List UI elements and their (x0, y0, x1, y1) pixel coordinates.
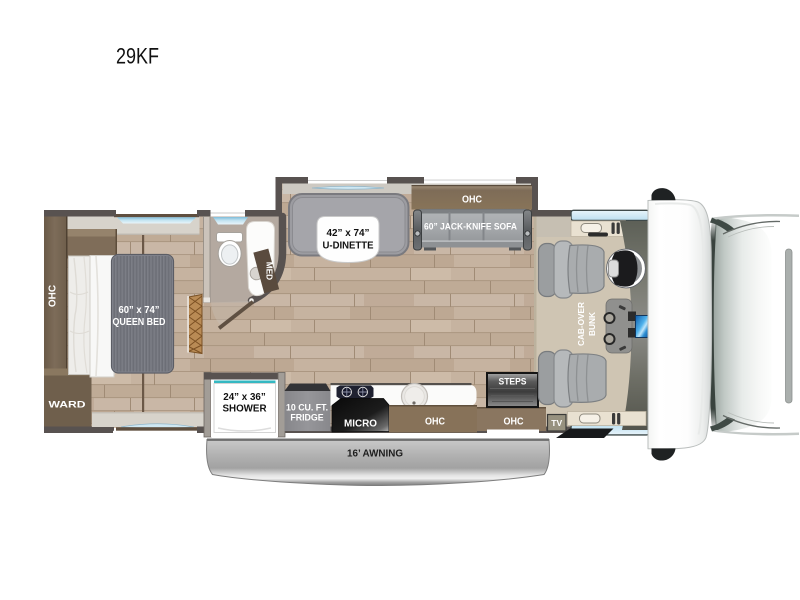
svg-text:MED: MED (265, 262, 274, 280)
svg-text:OHC: OHC (504, 417, 524, 428)
svg-text:TV: TV (551, 418, 562, 428)
svg-text:FRIDGE: FRIDGE (290, 413, 323, 423)
svg-text:BUNK: BUNK (587, 312, 597, 336)
svg-text:24” x 36”: 24” x 36” (223, 392, 266, 403)
svg-text:42” x 74”: 42” x 74” (327, 228, 370, 239)
svg-text:U-DINETTE: U-DINETTE (323, 241, 374, 252)
svg-text:16’ AWNING: 16’ AWNING (347, 448, 403, 460)
svg-text:10 CU. FT.: 10 CU. FT. (286, 403, 328, 413)
svg-text:OHC: OHC (462, 195, 482, 206)
svg-text:60” x 74”: 60” x 74” (119, 305, 160, 316)
svg-text:STEPS: STEPS (499, 377, 527, 387)
svg-text:QUEEN BED: QUEEN BED (113, 317, 166, 328)
svg-text:29KF: 29KF (116, 44, 159, 69)
svg-text:OHC: OHC (425, 417, 445, 428)
svg-text:MICRO: MICRO (344, 419, 377, 430)
svg-text:SHOWER: SHOWER (222, 404, 266, 415)
svg-text:60” JACK-KNIFE SOFA: 60” JACK-KNIFE SOFA (424, 222, 517, 232)
svg-text:WARD: WARD (49, 400, 86, 411)
svg-text:OHC: OHC (48, 285, 59, 307)
svg-text:CAB-OVER: CAB-OVER (576, 302, 586, 346)
